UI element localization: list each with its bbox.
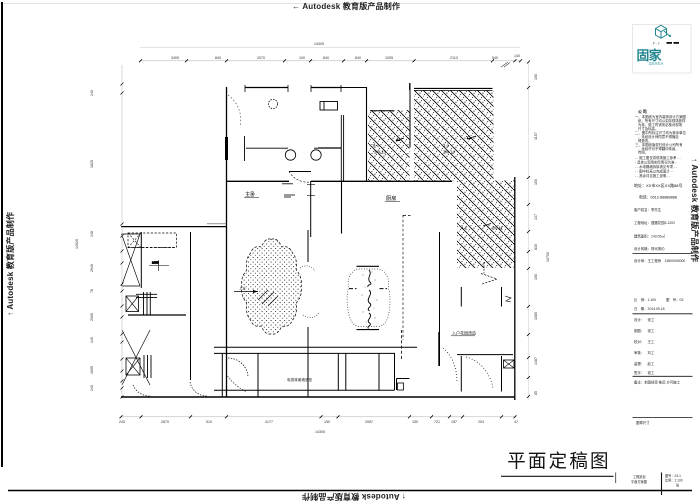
svg-text:47: 47: [514, 420, 518, 424]
svg-text:校对： 王工: 校对： 王工: [634, 339, 655, 344]
svg-text:日 期：2014.05.18: 日 期：2014.05.18: [634, 306, 665, 311]
svg-text:2087: 2087: [365, 420, 373, 424]
svg-text:1487: 1487: [534, 357, 538, 365]
svg-text:厨房: 厨房: [386, 194, 396, 202]
svg-text:540: 540: [492, 56, 498, 60]
svg-text:建筑面积：143.05㎡: 建筑面积：143.05㎡: [634, 234, 665, 239]
svg-text:240: 240: [90, 385, 94, 391]
svg-text:150: 150: [534, 179, 538, 185]
svg-text:公 司: 公 司: [638, 109, 647, 114]
svg-text:78: 78: [90, 289, 94, 293]
svg-text:图号：03-1: 图号：03-1: [665, 473, 681, 478]
svg-text:主卧: 主卧: [245, 190, 255, 198]
svg-text:F · J: F · J: [653, 42, 660, 46]
svg-text:监理： 赵工: 监理： 赵工: [634, 361, 655, 366]
svg-text:传阅。: 传阅。: [638, 150, 648, 155]
svg-text:1085: 1085: [534, 312, 538, 320]
svg-text:248: 248: [90, 231, 94, 237]
svg-text:137: 137: [534, 214, 538, 220]
svg-text:721: 721: [434, 420, 440, 424]
svg-text:- - 图中标高以完成面计 - -: - - 图中标高以完成面计 - -: [635, 169, 674, 174]
svg-text:入户花园改造: 入户花园改造: [452, 330, 476, 336]
svg-text:150: 150: [534, 74, 538, 80]
svg-text:制图： 张工: 制图： 张工: [634, 328, 655, 333]
svg-text:3M-14: 3M-14: [443, 150, 456, 155]
svg-text:240: 240: [119, 420, 125, 424]
svg-text:4-1: 4-1: [461, 226, 468, 231]
svg-text:3M-13: 3M-13: [374, 150, 387, 155]
svg-text:图幛尺寸: 图幛尺寸: [636, 420, 650, 425]
svg-text:↑ Autodesk 教育版产品制作: ↑ Autodesk 教育版产品制作: [690, 158, 700, 262]
svg-text:- - 其余详见施工说明 - -: - - 其余详见施工说明 - -: [635, 173, 670, 178]
svg-text:1400: 1400: [152, 261, 159, 265]
svg-text:- - 水电隔墙拆除请见专项 - -: - - 水电隔墙拆除请见专项 - -: [635, 164, 677, 169]
svg-text:工程篇目: 工程篇目: [633, 474, 646, 479]
svg-text:d-1: d-1: [373, 143, 380, 148]
svg-text:510: 510: [206, 420, 212, 424]
svg-text:150: 150: [534, 274, 538, 280]
svg-text:↑ Autodesk 教育版产品制作: ↑ Autodesk 教育版产品制作: [302, 492, 406, 502]
svg-text:设计师：王工程师 13800000000: 设计师：王工程师 13800000000: [634, 258, 685, 263]
svg-text:上方: 上方: [239, 286, 246, 291]
svg-text:1-1: 1-1: [443, 143, 450, 148]
svg-text:150: 150: [324, 420, 330, 424]
svg-text:14305: 14305: [314, 42, 324, 46]
svg-text:2000: 2000: [90, 313, 94, 321]
svg-text:14305: 14305: [315, 430, 325, 434]
svg-text:140: 140: [514, 54, 520, 58]
svg-text:比例：1:100: 比例：1:100: [665, 478, 683, 483]
svg-text:图 号：03: 图 号：03: [666, 297, 683, 302]
svg-text:240: 240: [90, 90, 94, 96]
svg-text:2113: 2113: [450, 56, 458, 60]
svg-text:840: 840: [323, 56, 329, 60]
svg-text:平面定稿图: 平面定稿图: [507, 451, 611, 472]
svg-text:2070: 2070: [257, 56, 265, 60]
svg-text:830: 830: [534, 244, 538, 250]
svg-text:2870: 2870: [161, 420, 169, 424]
svg-text:1157: 1157: [534, 132, 538, 140]
svg-text:客户姓名：李先生: 客户姓名：李先生: [634, 207, 662, 212]
svg-text:设计风格：现代简约: 设计风格：现代简约: [634, 246, 665, 251]
svg-text:840: 840: [355, 56, 361, 60]
svg-text:1825: 1825: [90, 160, 94, 168]
svg-text:157: 157: [451, 420, 457, 424]
svg-text:3405: 3405: [171, 56, 179, 60]
svg-text:85: 85: [534, 391, 538, 395]
svg-text:电视背景墙造型: 电视背景墙造型: [287, 377, 313, 382]
svg-text:150: 150: [412, 420, 418, 424]
svg-text:10700: 10700: [546, 252, 550, 262]
svg-text:3K-11: 3K-11: [492, 226, 504, 231]
svg-text:2946: 2946: [90, 264, 94, 272]
svg-text:14920: 14920: [75, 239, 79, 249]
svg-text:比 例：1:100: 比 例：1:100: [634, 297, 656, 302]
svg-text:备注：本图经审 核后 方可施工: 备注：本图经审 核后 方可施工: [634, 380, 681, 385]
svg-text:100: 100: [299, 56, 305, 60]
svg-text:居家好生活: 居家好生活: [649, 62, 663, 66]
svg-text:电话：0512-88888888: 电话：0512-88888888: [639, 195, 677, 200]
svg-text:140: 140: [90, 337, 94, 343]
svg-text:203: 203: [478, 420, 484, 424]
svg-text:平面方案图: 平面方案图: [631, 479, 647, 484]
svg-text:4177: 4177: [265, 420, 273, 424]
svg-text:← Autodesk 教育版产品制作: ← Autodesk 教育版产品制作: [292, 1, 400, 11]
svg-text:↑ Autodesk 教育版产品制作: ↑ Autodesk 教育版产品制作: [5, 212, 15, 316]
svg-text:签字： 钱工: 签字： 钱工: [634, 370, 655, 375]
svg-text:工程地址：昌圆花园3-1202: 工程地址：昌圆花园3-1202: [634, 220, 675, 225]
svg-text:地址：XX市XX区XX路88号: 地址：XX市XX区XX路88号: [634, 182, 682, 188]
svg-text:1605: 1605: [90, 366, 94, 374]
svg-text:- - 施工图仅供现场施工参考 - -: - - 施工图仅供现场施工参考 - -: [635, 155, 681, 160]
svg-text:审核： 刘工: 审核： 刘工: [634, 350, 655, 355]
svg-text:设计： 张工: 设计： 张工: [634, 317, 655, 322]
svg-text:- 具体以现场实际情况为准 -: - 具体以现场实际情况为准 -: [635, 160, 676, 165]
svg-text:840: 840: [215, 56, 221, 60]
svg-text:1005: 1005: [385, 56, 393, 60]
